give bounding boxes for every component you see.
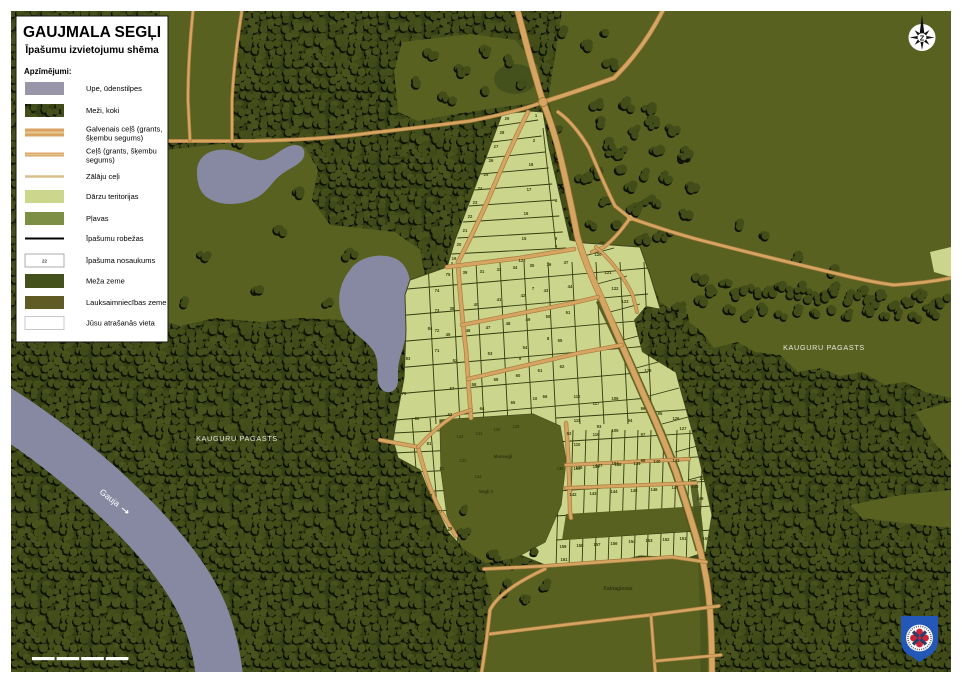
svg-text:158: 158 (577, 543, 585, 548)
svg-text:126: 126 (673, 416, 681, 421)
svg-text:Pļavas: Pļavas (86, 214, 109, 223)
svg-text:34: 34 (513, 265, 518, 270)
svg-text:76: 76 (448, 526, 453, 531)
svg-text:84: 84 (428, 326, 433, 331)
svg-text:159: 159 (560, 544, 568, 549)
svg-text:149: 149 (697, 496, 705, 501)
svg-text:26: 26 (489, 158, 494, 163)
svg-text:131: 131 (476, 431, 484, 436)
svg-text:18: 18 (529, 162, 534, 167)
svg-text:153: 153 (646, 538, 654, 543)
svg-text:21: 21 (463, 228, 468, 233)
svg-text:Pavāni: Pavāni (393, 155, 406, 160)
svg-text:96: 96 (641, 406, 646, 411)
svg-text:77: 77 (438, 509, 443, 514)
svg-text:Kalnaglesas: Kalnaglesas (603, 586, 632, 592)
svg-text:60: 60 (516, 373, 521, 378)
svg-text:Upe, ūdenstilpes: Upe, ūdenstilpes (86, 84, 142, 93)
svg-text:138: 138 (615, 462, 623, 467)
svg-text:117: 117 (593, 401, 600, 406)
svg-text:54: 54 (523, 345, 528, 350)
svg-text:73: 73 (435, 308, 440, 313)
svg-text:49: 49 (526, 317, 531, 322)
svg-text:Ceļš (grants, šķembu: Ceļš (grants, šķembu (86, 147, 157, 156)
svg-text:28: 28 (500, 130, 505, 135)
svg-text:81: 81 (427, 441, 432, 446)
svg-text:15: 15 (522, 236, 527, 241)
svg-text:17: 17 (527, 187, 532, 192)
svg-text:45: 45 (446, 332, 451, 337)
svg-text:135: 135 (557, 466, 565, 471)
svg-text:šķembu segums): šķembu segums) (86, 134, 144, 143)
svg-text:139: 139 (634, 461, 642, 466)
svg-text:16: 16 (524, 211, 529, 216)
svg-text:37: 37 (564, 260, 569, 265)
svg-text:61: 61 (538, 368, 543, 373)
svg-text:48: 48 (506, 321, 511, 326)
svg-text:121: 121 (605, 270, 613, 275)
svg-text:86: 86 (418, 476, 423, 481)
svg-text:35: 35 (530, 263, 535, 268)
svg-text:41: 41 (497, 297, 502, 302)
svg-text:46: 46 (466, 328, 471, 333)
svg-text:Īpašuma nosaukums: Īpašuma nosaukums (86, 256, 155, 265)
svg-text:128: 128 (700, 476, 708, 481)
svg-text:58: 58 (472, 382, 477, 387)
svg-text:Īpašumu robežas: Īpašumu robežas (86, 234, 144, 243)
svg-text:Meža zeme: Meža zeme (86, 277, 125, 286)
svg-text:80: 80 (415, 416, 420, 421)
svg-text:122: 122 (612, 286, 620, 291)
svg-text:150: 150 (703, 536, 711, 541)
svg-text:156: 156 (611, 541, 619, 546)
svg-text:74: 74 (435, 288, 440, 293)
svg-text:Īpašumu izvietojumu shēma: Īpašumu izvietojumu shēma (24, 44, 159, 56)
svg-text:79: 79 (402, 391, 407, 396)
svg-text:39: 39 (463, 270, 468, 275)
svg-text:123: 123 (622, 299, 630, 304)
svg-text:98: 98 (641, 458, 646, 463)
svg-text:111: 111 (574, 418, 581, 423)
svg-text:33: 33 (497, 267, 502, 272)
svg-text:87: 87 (428, 493, 433, 498)
svg-text:10: 10 (533, 396, 538, 401)
svg-text:25: 25 (484, 172, 489, 177)
svg-text:124: 124 (519, 258, 527, 263)
svg-text:105: 105 (612, 428, 620, 433)
svg-text:152: 152 (663, 537, 671, 542)
svg-text:127: 127 (680, 426, 688, 431)
svg-text:130: 130 (494, 427, 502, 432)
svg-text:22: 22 (468, 214, 473, 219)
svg-text:132: 132 (457, 434, 465, 439)
svg-text:143: 143 (590, 491, 598, 496)
svg-text:52: 52 (453, 358, 458, 363)
svg-text:segums): segums) (86, 156, 115, 165)
svg-text:95: 95 (658, 411, 663, 416)
svg-text:27: 27 (494, 144, 499, 149)
svg-text:38: 38 (450, 306, 455, 311)
svg-text:82: 82 (440, 466, 445, 471)
svg-text:47: 47 (486, 325, 491, 330)
svg-text:44: 44 (568, 284, 573, 289)
svg-text:161: 161 (561, 557, 569, 562)
svg-text:42: 42 (521, 293, 526, 298)
svg-text:83: 83 (406, 356, 411, 361)
svg-text:Dārzu teritorijas: Dārzu teritorijas (86, 192, 139, 201)
svg-text:66: 66 (543, 394, 548, 399)
svg-text:65: 65 (511, 400, 516, 405)
svg-text:19: 19 (452, 256, 457, 261)
svg-text:112: 112 (574, 394, 581, 399)
svg-text:94: 94 (628, 418, 633, 423)
svg-text:Zālāju ceļi: Zālāju ceļi (86, 172, 120, 181)
svg-text:122: 122 (460, 458, 468, 463)
svg-text:146: 146 (651, 487, 659, 492)
svg-text:141: 141 (673, 458, 681, 463)
svg-text:145: 145 (631, 488, 639, 493)
svg-text:51: 51 (566, 310, 571, 315)
svg-text:151: 151 (680, 536, 688, 541)
svg-text:57: 57 (450, 386, 455, 391)
svg-text:110: 110 (574, 442, 581, 447)
svg-text:97: 97 (641, 432, 646, 437)
svg-text:62: 62 (560, 364, 565, 369)
svg-text:59: 59 (494, 377, 499, 382)
svg-text:43: 43 (544, 288, 549, 293)
svg-text:137: 137 (596, 463, 604, 468)
svg-text:Z: Z (920, 33, 925, 42)
svg-text:63: 63 (448, 412, 453, 417)
svg-text:50: 50 (546, 314, 551, 319)
svg-text:29: 29 (505, 116, 510, 121)
svg-text:125: 125 (645, 368, 653, 373)
svg-text:116: 116 (593, 432, 600, 437)
svg-text:31: 31 (480, 269, 485, 274)
svg-text:Meži, koki: Meži, koki (86, 106, 120, 115)
svg-text:Mazsegļi: Mazsegļi (494, 454, 513, 459)
svg-text:71: 71 (435, 348, 440, 353)
svg-text:140: 140 (654, 459, 662, 464)
svg-text:40: 40 (474, 302, 479, 307)
svg-text:120: 120 (595, 252, 603, 257)
svg-text:Jūsu atrašanās vieta: Jūsu atrašanās vieta (86, 319, 156, 328)
svg-text:75: 75 (446, 272, 451, 277)
svg-text:148: 148 (692, 484, 700, 489)
svg-text:KAUGURU PAGASTS: KAUGURU PAGASTS (783, 343, 865, 352)
svg-text:24: 24 (478, 186, 483, 191)
svg-text:106: 106 (612, 396, 620, 401)
svg-text:129: 129 (513, 424, 521, 429)
svg-text:GAUJMALA SEGĻI: GAUJMALA SEGĻI (23, 24, 161, 41)
svg-text:53: 53 (488, 351, 493, 356)
svg-text:55: 55 (558, 338, 563, 343)
svg-text:KAUGURU PAGASTS: KAUGURU PAGASTS (196, 434, 278, 443)
svg-text:142: 142 (570, 492, 578, 497)
svg-text:154: 154 (629, 539, 637, 544)
svg-text:Segļi 2: Segļi 2 (479, 489, 494, 494)
svg-text:Galvenais ceļš (grants,: Galvenais ceļš (grants, (86, 125, 162, 134)
svg-text:157: 157 (594, 542, 602, 547)
svg-text:23: 23 (473, 200, 478, 205)
svg-text:134: 134 (475, 474, 483, 479)
svg-text:22: 22 (42, 258, 48, 263)
svg-text:92: 92 (567, 431, 572, 436)
svg-text:Lauksaimniecības zeme: Lauksaimniecības zeme (86, 298, 166, 307)
svg-text:64: 64 (480, 406, 485, 411)
svg-text:93: 93 (597, 424, 602, 429)
svg-text:72: 72 (435, 328, 440, 333)
svg-text:20: 20 (457, 242, 462, 247)
svg-text:36: 36 (547, 262, 552, 267)
svg-text:144: 144 (611, 489, 619, 494)
svg-text:Apzīmējumi:: Apzīmējumi: (24, 67, 72, 76)
svg-text:147: 147 (672, 485, 680, 490)
svg-text:136: 136 (576, 465, 584, 470)
